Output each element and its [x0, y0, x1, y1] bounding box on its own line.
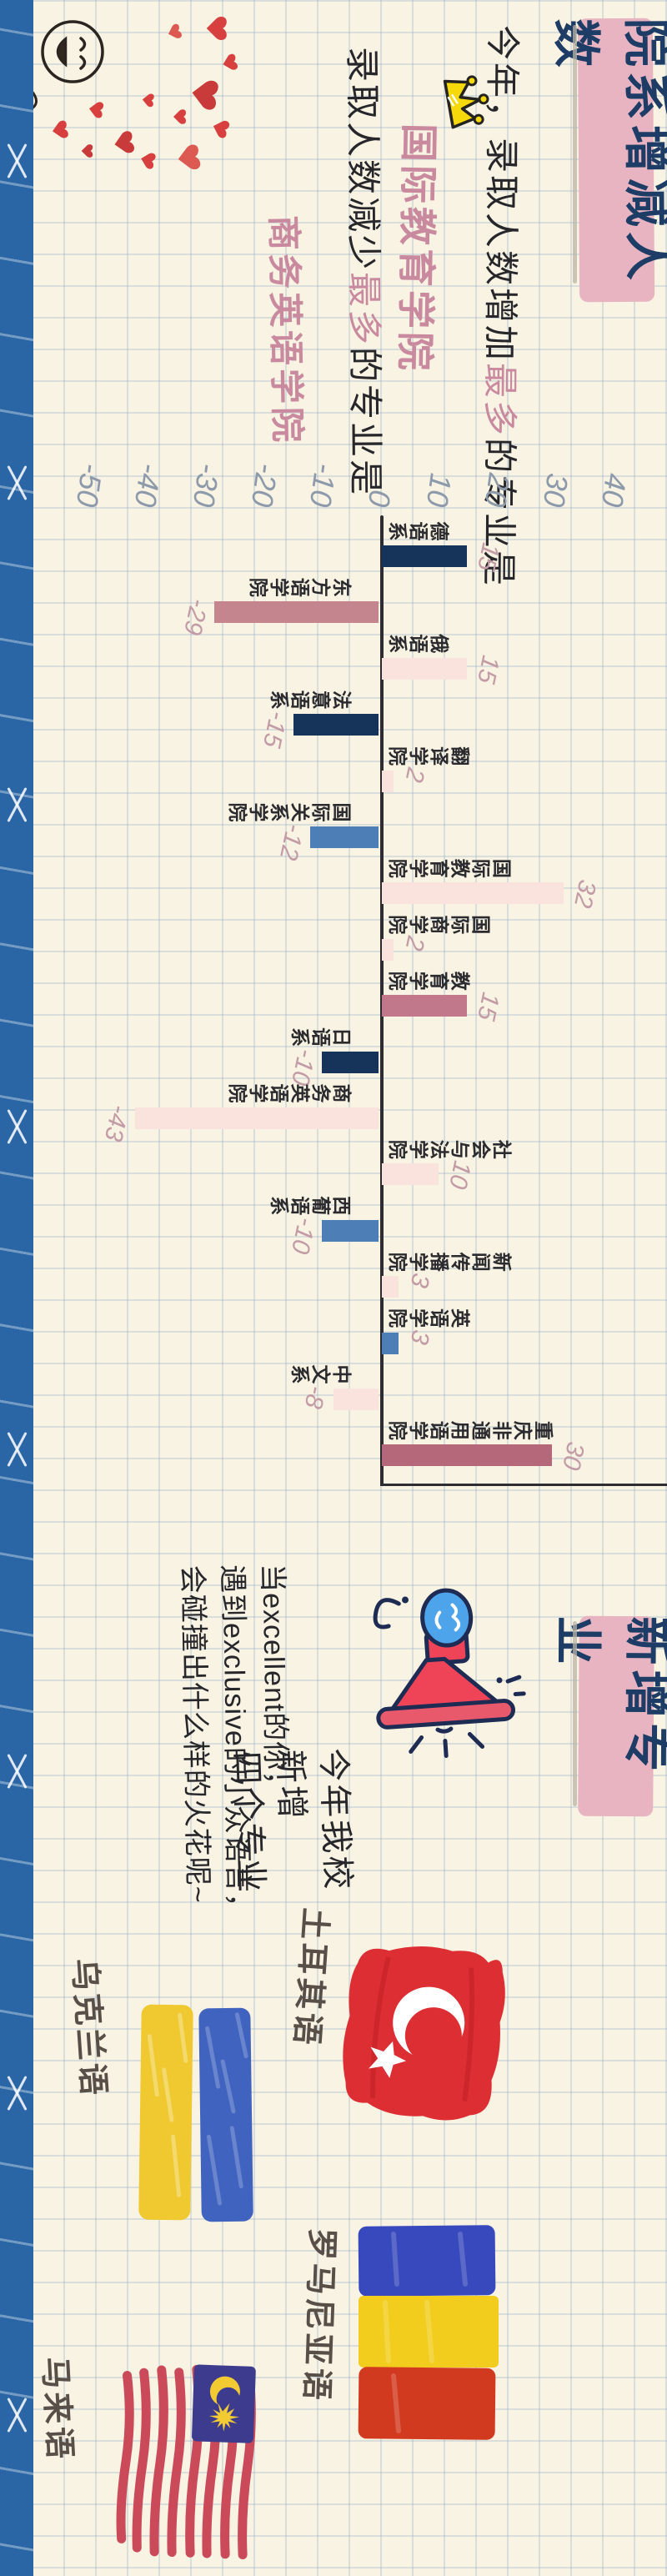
chart-bar	[382, 882, 564, 904]
intro-line-2: 录取人数减少最多的专业是	[339, 47, 394, 498]
chart-bar	[135, 1107, 379, 1129]
bar-category-label: 重庆非通用语学院	[387, 1416, 554, 1441]
chart-bar	[382, 658, 467, 680]
section2-title-highlight: 新增专业	[578, 1616, 654, 1817]
tape-x-mark	[4, 2074, 29, 2112]
major-label-romanian: 罗马尼亚语	[296, 2227, 348, 2404]
bar-value-label: -8	[298, 1383, 330, 1411]
title-underline	[573, 25, 577, 284]
ukraine-flag-icon	[132, 2003, 257, 2228]
tape-x-mark	[4, 2396, 29, 2434]
tagline-line: 当excellent的你，	[252, 1564, 298, 1922]
bar-category-label: 日语系	[289, 1023, 352, 1048]
axis-tick: -20	[244, 438, 288, 509]
bar-value-label: 32	[568, 877, 601, 911]
romania-flag-icon	[354, 2222, 502, 2443]
intro2-pre: 录取人数减少	[343, 47, 384, 272]
chart-bar	[322, 1220, 379, 1242]
chart-bar	[333, 1388, 379, 1410]
answer-most-decrease: 商务英语学院	[261, 214, 316, 445]
major-label-ukrainian: 乌克兰语	[64, 1956, 120, 2099]
smiley-hearts-doodle	[4, 3, 246, 174]
bar-category-label: 中文系	[289, 1360, 352, 1385]
section1-title: 院系增减人数	[545, 18, 667, 302]
bar-value-label: 30	[556, 1439, 589, 1473]
rotated-stage: 院系增减人数 今年，录取人数增加最多的专业是 国际教育学院 录取人数减少最多的专…	[0, 0, 667, 2576]
bar-value-label: -12	[273, 821, 308, 862]
turkey-flag-icon	[330, 1932, 514, 2137]
tape-x-mark	[4, 1430, 29, 1469]
major-label-malay: 马来语	[35, 2356, 87, 2463]
bar-category-label: 西葡语系	[268, 1192, 352, 1217]
axis-tick: -40	[128, 438, 172, 509]
major-label-turkish: 土耳其语	[286, 1906, 342, 2049]
infographic-canvas: 院系增减人数 今年，录取人数增加最多的专业是 国际教育学院 录取人数减少最多的专…	[0, 0, 667, 2576]
tagline-line: 遇到exclusive的小众语言，	[212, 1564, 258, 1923]
chart-end-divider	[380, 1484, 667, 1486]
bar-value-label: -10	[285, 1215, 320, 1256]
tape-x-mark	[4, 1752, 29, 1790]
bar-value-label: -43	[98, 1102, 133, 1143]
chart-bar	[214, 601, 379, 623]
chart-bar	[382, 1444, 552, 1466]
chart-bar	[310, 826, 379, 848]
bar-category-label: 国际商学院	[387, 911, 491, 936]
axis-tick: -30	[186, 438, 230, 509]
chart-bar	[382, 771, 394, 792]
bar-category-label: 法意语系	[268, 685, 352, 711]
bar-category-label: 俄语系	[387, 630, 449, 655]
bar-category-label: 国际关系学院	[227, 798, 352, 823]
bar-value-label: 2	[399, 765, 429, 784]
axis-tick: 10	[419, 438, 464, 509]
bar-category-label: 社会与法学院	[387, 1135, 512, 1160]
tape-x-mark	[4, 1107, 29, 1146]
bar-category-label: 新闻传播学院	[387, 1248, 512, 1273]
bar-value-label: 3	[404, 1271, 435, 1290]
bar-category-label: 国际教育学院	[387, 854, 512, 879]
chart-bar	[382, 1276, 399, 1298]
announce-line: 今年我校	[311, 1747, 359, 1892]
chart-bar	[322, 1052, 379, 1073]
chart-bar	[382, 939, 394, 961]
malaysia-flag-icon	[111, 2360, 258, 2561]
bar-category-label: 商务英语学院	[227, 1079, 352, 1104]
bar-category-label: 英语学院	[387, 1304, 470, 1329]
axis-tick: 40	[594, 438, 639, 509]
tagline-line: 会碰撞出什么样的火花呢~	[172, 1564, 218, 1923]
bar-value-label: 3	[404, 1327, 435, 1346]
bar-value-label: 15	[471, 653, 504, 686]
chart-bar	[293, 714, 379, 736]
answer-most-increase: 国际教育学院	[389, 123, 449, 374]
bar-value-label: 2	[399, 933, 429, 952]
megaphone-icon	[342, 1577, 533, 1764]
chart-bar	[382, 1333, 399, 1354]
bar-value-label: -15	[257, 709, 292, 750]
section2-title: 新增专业	[545, 1615, 667, 1816]
bar-value-label: 15	[471, 540, 504, 574]
intro2-highlight: 最多	[344, 272, 384, 347]
tagline-text: 当excellent的你， 遇到exclusive的小众语言， 会碰撞出什么样的…	[172, 1564, 298, 1923]
bar-value-label: 15	[471, 990, 504, 1023]
axis-tick: -10	[303, 438, 347, 509]
chart-bar	[382, 545, 467, 567]
tape-x-mark	[4, 464, 29, 502]
bar-value-label: -29	[178, 596, 213, 637]
axis-tick: 30	[536, 438, 580, 509]
bar-category-label: 东方语学院	[248, 573, 352, 598]
bar-category-label: 德语系	[387, 517, 449, 542]
bar-category-label: 翻译学院	[387, 742, 470, 767]
bar-value-label: 10	[443, 1158, 476, 1192]
tape-x-mark	[4, 142, 29, 180]
bar-category-label: 教育学院	[387, 967, 470, 992]
title-underline-2	[573, 1621, 577, 1806]
washi-tape-border	[0, 0, 33, 2576]
intro1-pre: 今年，录取人数增加	[481, 25, 523, 363]
chart-bar	[382, 995, 467, 1017]
axis-tick: -50	[69, 438, 113, 509]
intro1-highlight: 最多	[480, 363, 520, 438]
tape-x-mark	[4, 786, 29, 824]
section1-title-highlight: 院系增减人数	[578, 18, 654, 303]
chart-bar	[382, 1163, 439, 1185]
